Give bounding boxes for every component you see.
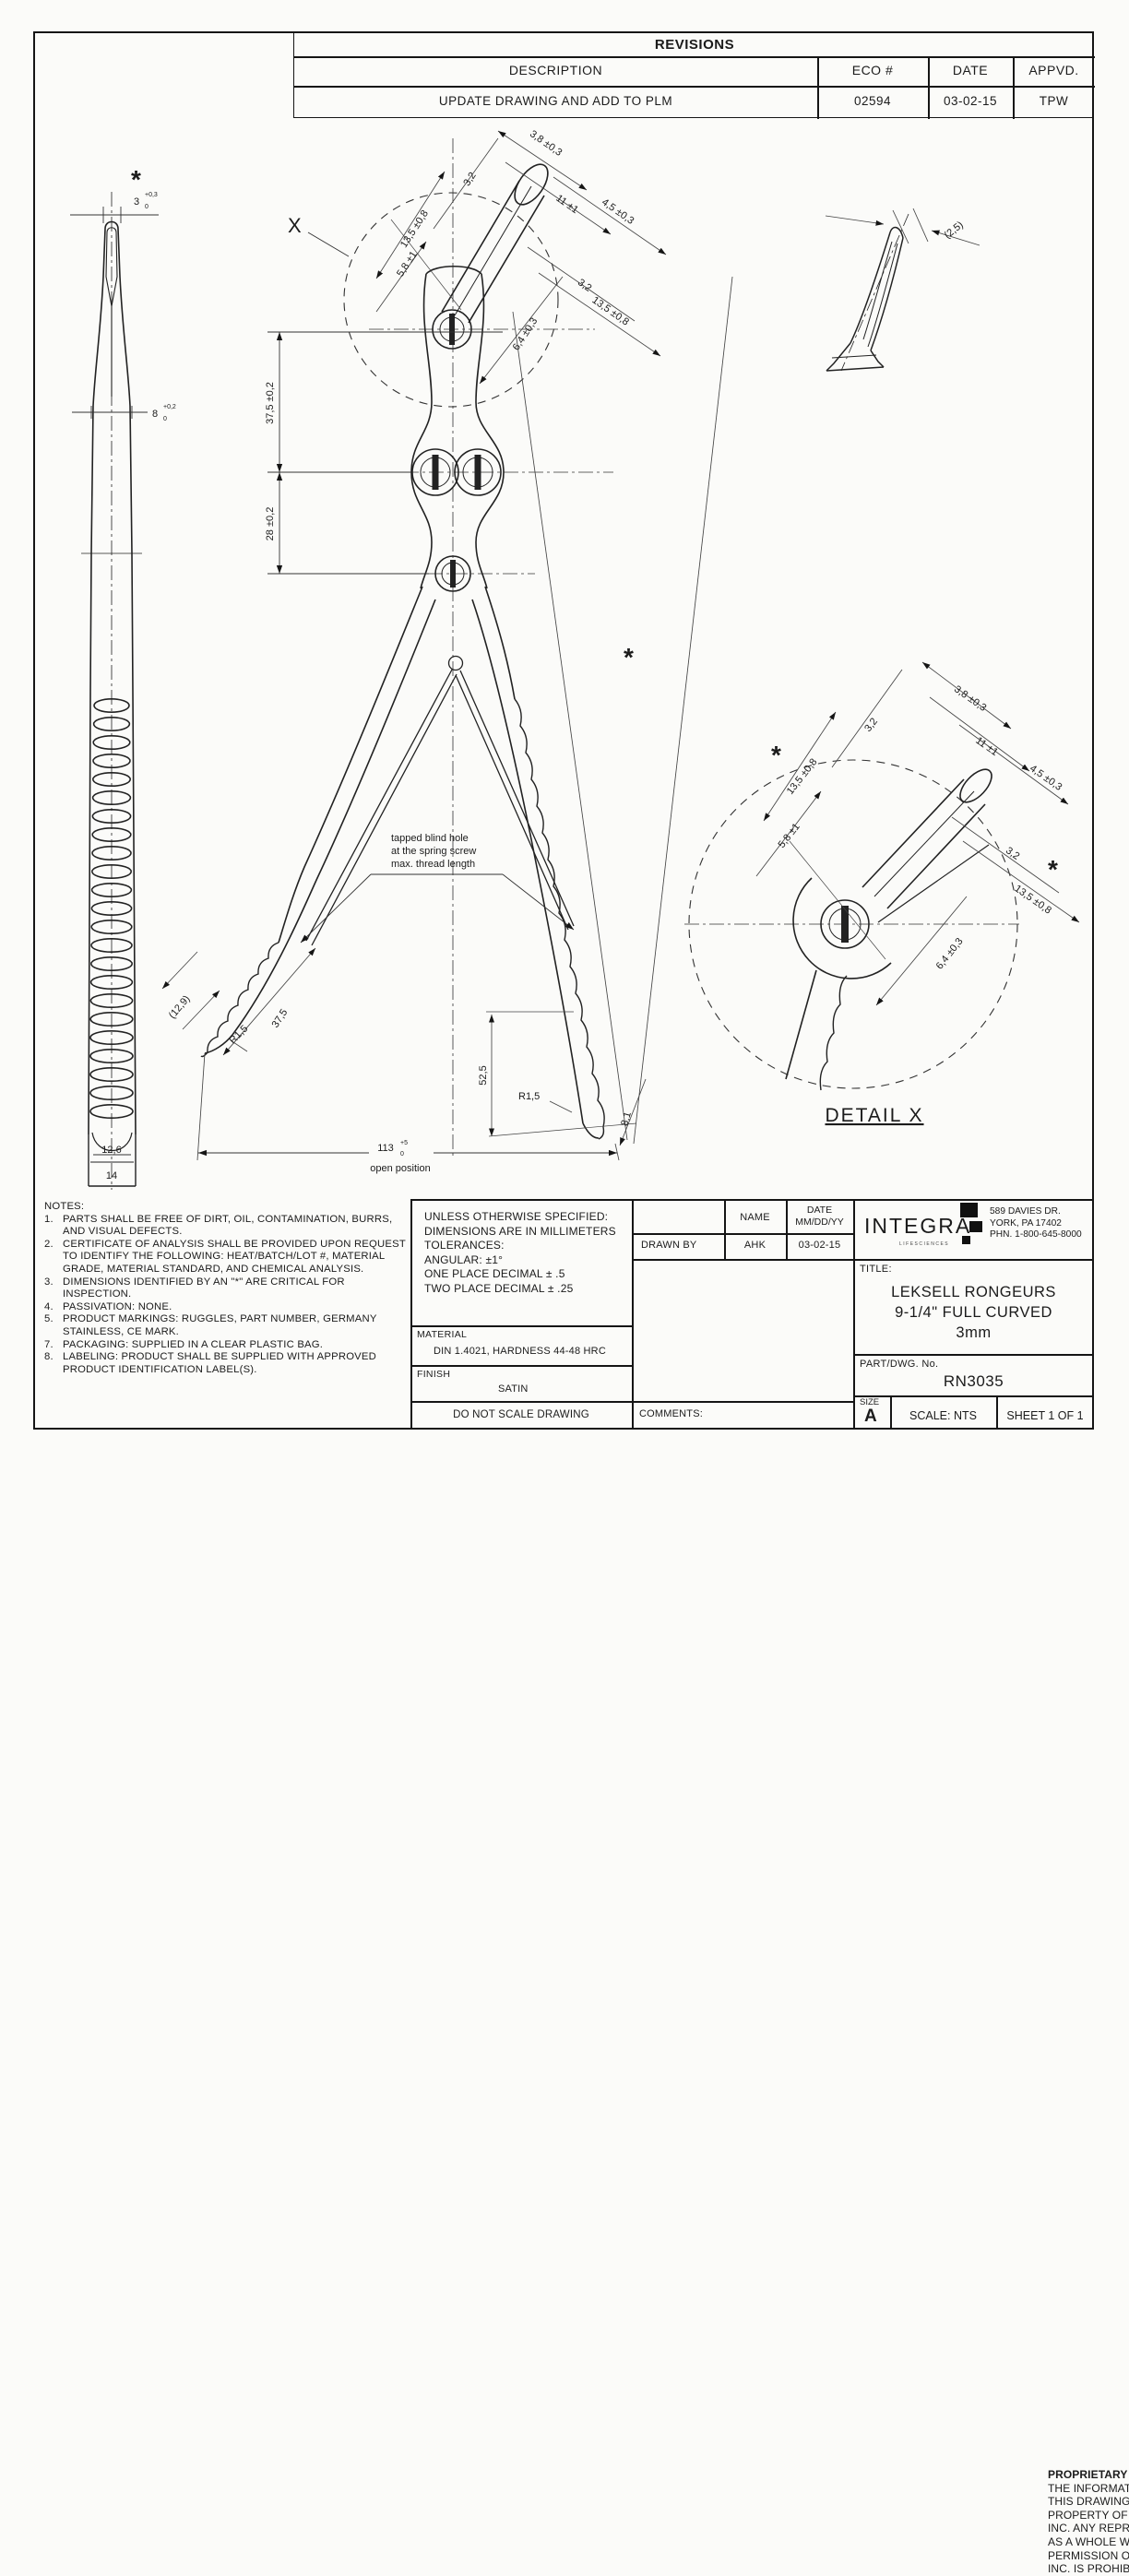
tapped-note-1: tapped blind hole — [391, 833, 469, 844]
tolerance-line: TWO PLACE DECIMAL ± .25 — [424, 1282, 629, 1297]
note-number: 5. — [44, 1313, 63, 1338]
tapped-note-2: at the spring screw — [391, 846, 476, 857]
critical-asterisk-4: * — [1048, 855, 1058, 884]
size-value: A — [864, 1407, 877, 1427]
title-label: TITLE: — [860, 1264, 892, 1275]
drawing-title-line1: LEKSELL RONGEURS — [853, 1284, 1094, 1301]
note-item: 2. CERTIFICATE OF ANALYSIS SHALL BE PROV… — [44, 1239, 413, 1276]
x-callout-leader — [308, 232, 349, 256]
main-view-jaw — [442, 159, 554, 323]
note-item: 3. DIMENSIONS IDENTIFIED BY AN "*" ARE C… — [44, 1276, 413, 1301]
finish-label: FINISH — [417, 1369, 450, 1380]
logo-mark-square — [962, 1236, 970, 1244]
critical-asterisk: * — [131, 165, 141, 194]
tolerance-line: ONE PLACE DECIMAL ± .5 — [424, 1267, 629, 1282]
proprietary-body: THE INFORMATION CONTAINED IN THIS DRAWIN… — [1048, 2482, 1129, 2576]
revisions-col-description: DESCRIPTION — [294, 63, 817, 77]
dim-11-b: 11 ±1 — [973, 735, 1000, 758]
dim-13-5-b: 13,5 ±0,8 — [590, 294, 631, 327]
dim-12-6-label: 12,6 — [101, 1145, 121, 1156]
drawn-by-name: AHK — [724, 1240, 786, 1251]
note-text: PACKAGING: SUPPLIED IN A CLEAR PLASTIC B… — [63, 1339, 413, 1352]
main-view-body — [411, 267, 504, 591]
main-view-spring — [306, 657, 574, 946]
dim-3-label: 3 — [134, 196, 139, 208]
revision-description: UPDATE DRAWING AND ADD TO PLM — [294, 94, 817, 108]
revisions-col-eco: ECO # — [817, 63, 928, 77]
note-item: 7. PACKAGING: SUPPLIED IN A CLEAR PLASTI… — [44, 1339, 413, 1352]
part-number-value: RN3035 — [853, 1372, 1094, 1391]
address-line: 589 DAVIES DR. — [990, 1206, 1082, 1218]
dim-8-label: 8 — [152, 409, 158, 420]
construction-lines — [513, 277, 732, 1144]
dim-8-sub: 0 — [163, 416, 167, 422]
dim-37-5: 37,5 — [270, 1007, 291, 1030]
dim-5-8-b: 5,8 ±1 — [777, 821, 802, 849]
dim-28-tol-label: 28 ±0,2 — [265, 507, 276, 541]
material-value: DIN 1.4021, HARDNESS 44-48 HRC — [434, 1346, 606, 1357]
revision-appvd: TPW — [1013, 94, 1095, 108]
bottom-right-dim-lines — [486, 1012, 646, 1160]
main-view-centerlines — [304, 138, 613, 1157]
dim-6-4-a: 6,4 ±0,3 — [511, 315, 541, 352]
critical-asterisk-2: * — [624, 643, 634, 671]
drawn-by-date: 03-02-15 — [786, 1240, 853, 1251]
note-text: LABELING: PRODUCT SHALL BE SUPPLIED WITH… — [63, 1351, 413, 1376]
comments-label: COMMENTS: — [639, 1408, 703, 1419]
bottom-left-dim-lines — [162, 948, 315, 1160]
open-position-label: open position — [370, 1163, 430, 1174]
notes-block: NOTES: 1. PARTS SHALL BE FREE OF DIRT, O… — [44, 1201, 413, 1376]
note-text: DIMENSIONS IDENTIFIED BY AN "*" ARE CRIT… — [63, 1276, 413, 1301]
note-item: 5. PRODUCT MARKINGS: RUGGLES, PART NUMBE… — [44, 1313, 413, 1338]
dim-3-2-c: 3,2 — [862, 716, 880, 733]
dim-113: 113 — [377, 1143, 394, 1154]
note-text: PARTS SHALL BE FREE OF DIRT, OIL, CONTAM… — [63, 1214, 413, 1239]
tip-detail-view — [826, 214, 909, 371]
revisions-col-date: DATE — [928, 63, 1013, 77]
revisions-title: REVISIONS — [294, 37, 1095, 53]
tolerance-line: ANGULAR: ±1° — [424, 1253, 629, 1268]
sheet-value: SHEET 1 OF 1 — [996, 1409, 1094, 1422]
address-line: PHN. 1-800-645-8000 — [990, 1229, 1082, 1241]
dim-37-5-tol-label: 37,5 ±0,2 — [265, 382, 276, 424]
title-block: UNLESS OTHERWISE SPECIFIED: DIMENSIONS A… — [410, 1199, 1094, 1430]
revisions-col-appvd: APPVD. — [1013, 63, 1095, 77]
drawing-title-line2: 9-1/4" FULL CURVED — [853, 1304, 1094, 1322]
note-number: 3. — [44, 1276, 63, 1301]
revision-eco: 02594 — [817, 94, 928, 108]
note-number: 8. — [44, 1351, 63, 1376]
finish-value: SATIN — [498, 1383, 529, 1395]
note-text: CERTIFICATE OF ANALYSIS SHALL BE PROVIDE… — [63, 1239, 413, 1276]
detail-x-part — [786, 764, 997, 1090]
logo-mark-square — [960, 1203, 978, 1217]
do-not-scale-note: DO NOT SCALE DRAWING — [410, 1409, 632, 1420]
company-logo-text: INTEGRA — [864, 1214, 971, 1239]
address-line: YORK, PA 17402 — [990, 1218, 1082, 1230]
proprietary-title: PROPRIETARY AND CONFIDENTIAL — [1048, 2468, 1129, 2481]
dim-5-8-a: 5,8 ±1 — [395, 249, 420, 279]
dim-4-5-a: 4,5 ±0,3 — [600, 196, 636, 227]
proprietary-notice: PROPRIETARY AND CONFIDENTIAL THE INFORMA… — [1048, 2468, 1129, 2576]
tolerance-line: UNLESS OTHERWISE SPECIFIED: — [424, 1210, 629, 1225]
note-item: 1. PARTS SHALL BE FREE OF DIRT, OIL, CON… — [44, 1214, 413, 1239]
critical-asterisk-3: * — [771, 741, 781, 769]
company-address: 589 DAVIES DR. YORK, PA 17402 PHN. 1-800… — [990, 1206, 1082, 1241]
company-tagline: LIFESCIENCES — [899, 1241, 949, 1247]
dim-12-9: (12,9) — [167, 993, 193, 1021]
dim-3-2-d: 3,2 — [1004, 845, 1021, 862]
note-text: PRODUCT MARKINGS: RUGGLES, PART NUMBER, … — [63, 1313, 413, 1338]
tolerance-block: UNLESS OTHERWISE SPECIFIED: DIMENSIONS A… — [424, 1210, 629, 1297]
dim-4-5-b: 4,5 ±0,3 — [1028, 763, 1064, 793]
dim-6-4-b: 6,4 ±0,3 — [934, 936, 966, 972]
note-text: PASSIVATION: NONE. — [63, 1301, 413, 1314]
dim-11-a: 11 ±1 — [553, 193, 580, 216]
date-header-line2: MM/DD/YY — [786, 1217, 853, 1228]
part-number-label: PART/DWG. No. — [860, 1359, 938, 1370]
detail-x-dim-lines — [756, 662, 1079, 1005]
dim-3-2-b: 3,2 — [576, 277, 593, 294]
dim-3-sub: 0 — [145, 204, 149, 210]
tapped-note-3: max. thread length — [391, 859, 475, 870]
note-number: 4. — [44, 1301, 63, 1314]
dim-r1-5-right: R1,5 — [518, 1091, 540, 1102]
dim-3-sup: +0,3 — [145, 192, 158, 198]
detail-x-label: DETAIL X — [825, 1105, 923, 1126]
main-left-dims — [267, 332, 503, 574]
dim-r1-5-left: R1,5 — [227, 1023, 250, 1046]
tolerance-line: DIMENSIONS ARE IN MILLIMETERS — [424, 1225, 629, 1240]
revisions-table: REVISIONS DESCRIPTION ECO # DATE APPVD. … — [293, 31, 1094, 118]
dim-8-sup: +0,2 — [163, 404, 176, 410]
dim-13-5-a: 13,5 ±0,8 — [398, 208, 431, 250]
material-label: MATERIAL — [417, 1329, 467, 1340]
dim-113-sub: 0 — [400, 1151, 404, 1157]
notes-title: NOTES: — [44, 1201, 413, 1214]
date-header-line1: DATE — [786, 1205, 853, 1216]
name-header: NAME — [724, 1212, 786, 1223]
dim-14-label: 14 — [106, 1170, 117, 1181]
note-number: 1. — [44, 1214, 63, 1239]
dim-113-sup: +5 — [400, 1140, 408, 1146]
dim-8-1: 8,1 — [619, 1110, 634, 1127]
x-callout-label: X — [288, 214, 302, 237]
tapped-note-leaders — [301, 874, 574, 943]
drawing-title-line3: 3mm — [853, 1324, 1094, 1342]
dim-52-5: 52,5 — [478, 1065, 489, 1085]
logo-mark-square — [969, 1221, 982, 1232]
revision-date: 03-02-15 — [928, 94, 1013, 108]
note-number: 7. — [44, 1339, 63, 1352]
note-number: 2. — [44, 1239, 63, 1276]
tolerance-line: TOLERANCES: — [424, 1239, 629, 1253]
dim-3-8-b: 3,8 ±0,3 — [952, 683, 988, 714]
drawn-by-label: DRAWN BY — [641, 1240, 696, 1251]
note-item: 8. LABELING: PRODUCT SHALL BE SUPPLIED W… — [44, 1351, 413, 1376]
side-profile-view — [81, 192, 142, 1190]
scale-value: SCALE: NTS — [890, 1409, 996, 1422]
note-item: 4. PASSIVATION: NONE. — [44, 1301, 413, 1314]
